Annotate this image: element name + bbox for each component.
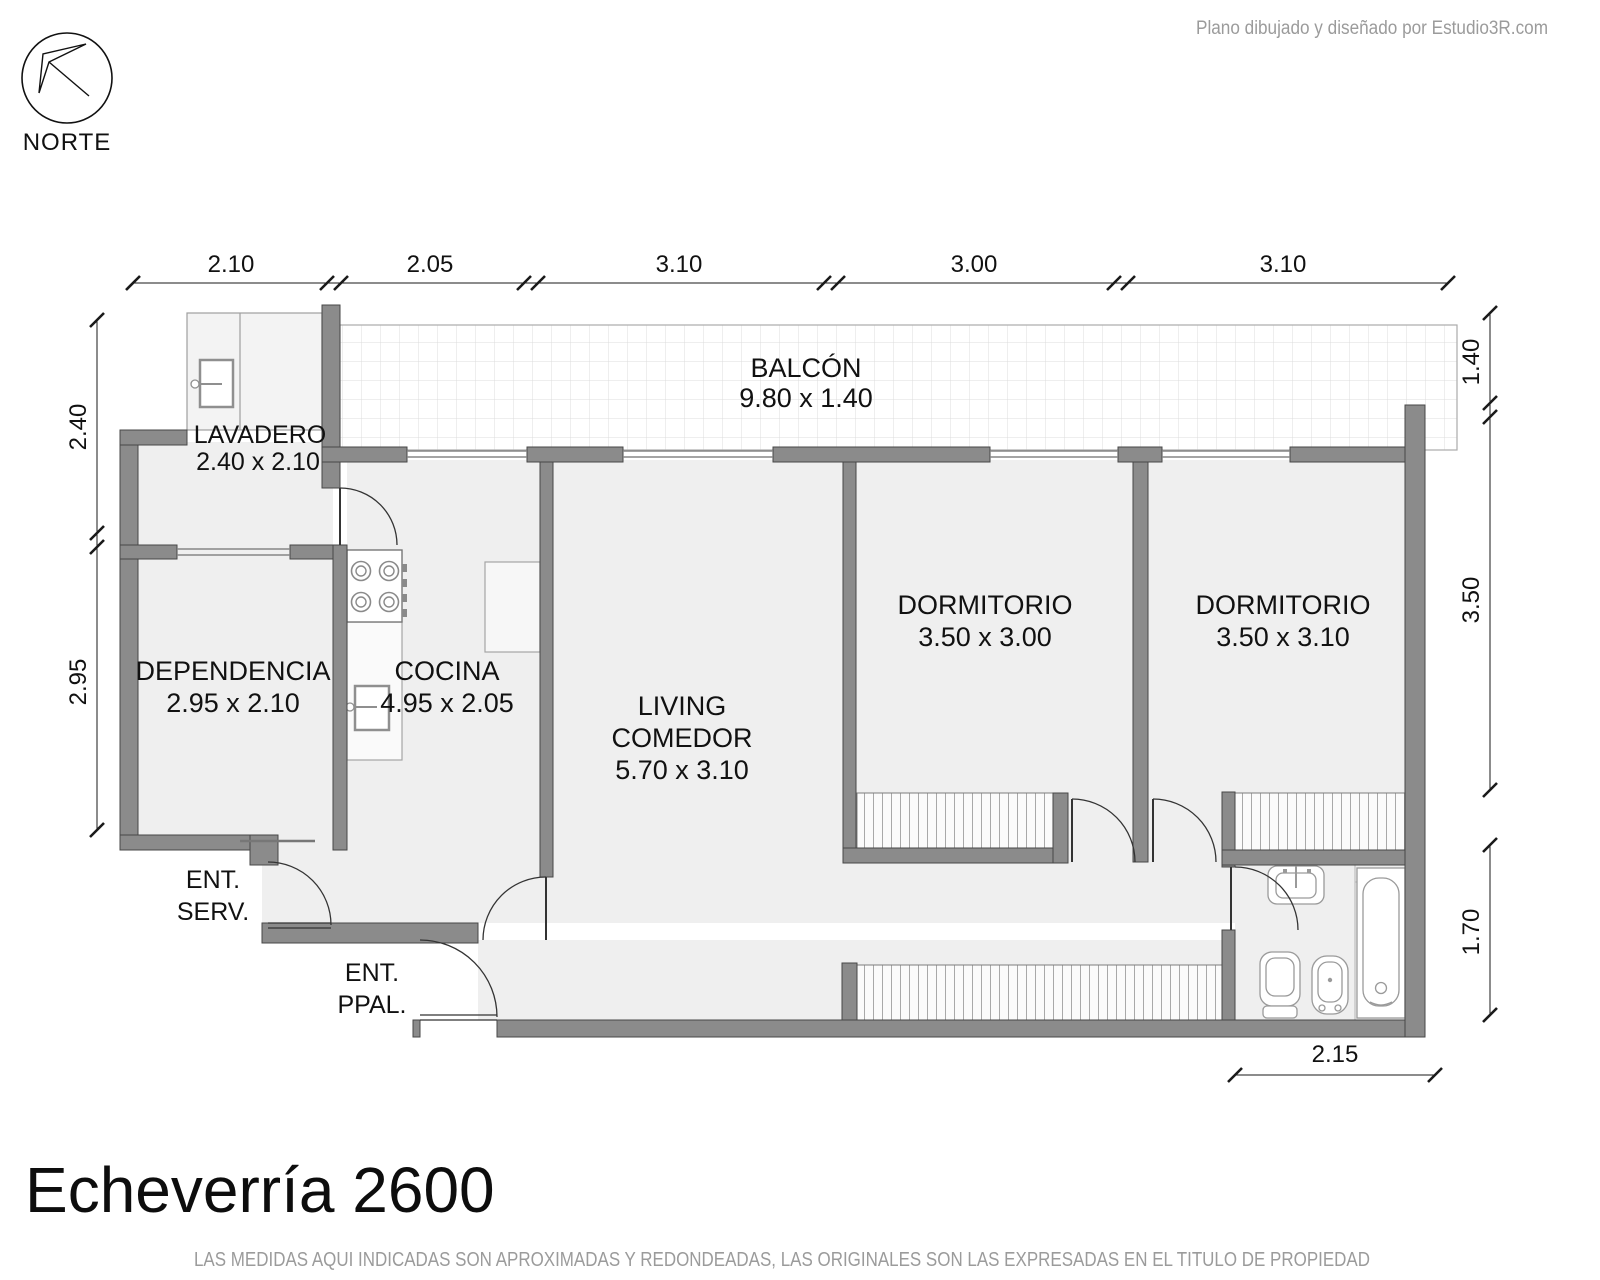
credit-text: Plano dibujado y diseñado por Estudio3R.… [1196,18,1548,39]
north-arrow-icon [39,44,86,93]
label-ent-ppal-1: ENT. [345,959,399,987]
label-dormitorio1-size: 3.50 x 3.00 [918,622,1052,652]
north-label: NORTE [23,129,112,156]
dim-left-0: 2.40 [65,404,92,451]
fridge-icon [485,562,540,652]
label-cocina: COCINA [394,656,499,686]
disclaimer-text: LAS MEDIDAS AQUI INDICADAS SON APROXIMAD… [194,1249,1370,1271]
label-balcon-size: 9.80 x 1.40 [739,383,873,413]
label-ent-serv-2: SERV. [177,898,249,926]
bath-sink-icon [1268,866,1324,904]
laundry-open-area [187,313,322,430]
label-living-size: 5.70 x 3.10 [615,755,749,785]
dim-top-0: 2.10 [208,251,255,278]
label-living-1: LIVING [638,691,727,721]
north-compass: NORTE [22,33,112,156]
dim-right-0: 1.40 [1458,339,1485,386]
label-dormitorio2-size: 3.50 x 3.10 [1216,622,1350,652]
stove-icon [347,550,407,622]
label-ent-ppal-2: PPAL. [337,991,406,1019]
floor-plan-page: NORTE Plano dibujado y diseñado por Estu… [0,0,1600,1280]
balcony-area [340,325,1457,450]
closet-dormitorio1 [857,793,1053,848]
dim-top-4: 3.10 [1260,251,1307,278]
label-living-2: COMEDOR [612,723,753,753]
dim-top-1: 2.05 [407,251,454,278]
bathtub-icon [1357,868,1405,1018]
floor-plan-canvas: NORTE Plano dibujado y diseñado por Estu… [0,0,1600,1280]
label-dormitorio1: DORMITORIO [898,590,1073,620]
label-dependencia-size: 2.95 x 2.10 [166,688,300,718]
closet-dormitorio2 [1235,793,1405,850]
dim-left-1: 2.95 [65,659,92,706]
label-ent-serv-1: ENT. [186,866,240,894]
label-cocina-size: 4.95 x 2.05 [380,688,514,718]
plan-title: Echeverría 2600 [25,1154,495,1226]
dim-top-3: 3.00 [951,251,998,278]
label-balcon: BALCÓN [750,352,861,383]
dim-top-2: 3.10 [656,251,703,278]
dim-bottom-0: 2.15 [1312,1041,1359,1068]
label-dependencia: DEPENDENCIA [135,656,330,686]
label-lavadero-size: 2.40 x 2.10 [196,448,320,476]
dim-right-2: 1.70 [1458,909,1485,956]
bidet-icon [1312,956,1348,1014]
dim-right-1: 3.50 [1458,577,1485,624]
label-dormitorio2: DORMITORIO [1196,590,1371,620]
closet-hall [857,965,1222,1020]
toilet-icon [1260,952,1300,1018]
label-lavadero: LAVADERO [194,421,326,449]
